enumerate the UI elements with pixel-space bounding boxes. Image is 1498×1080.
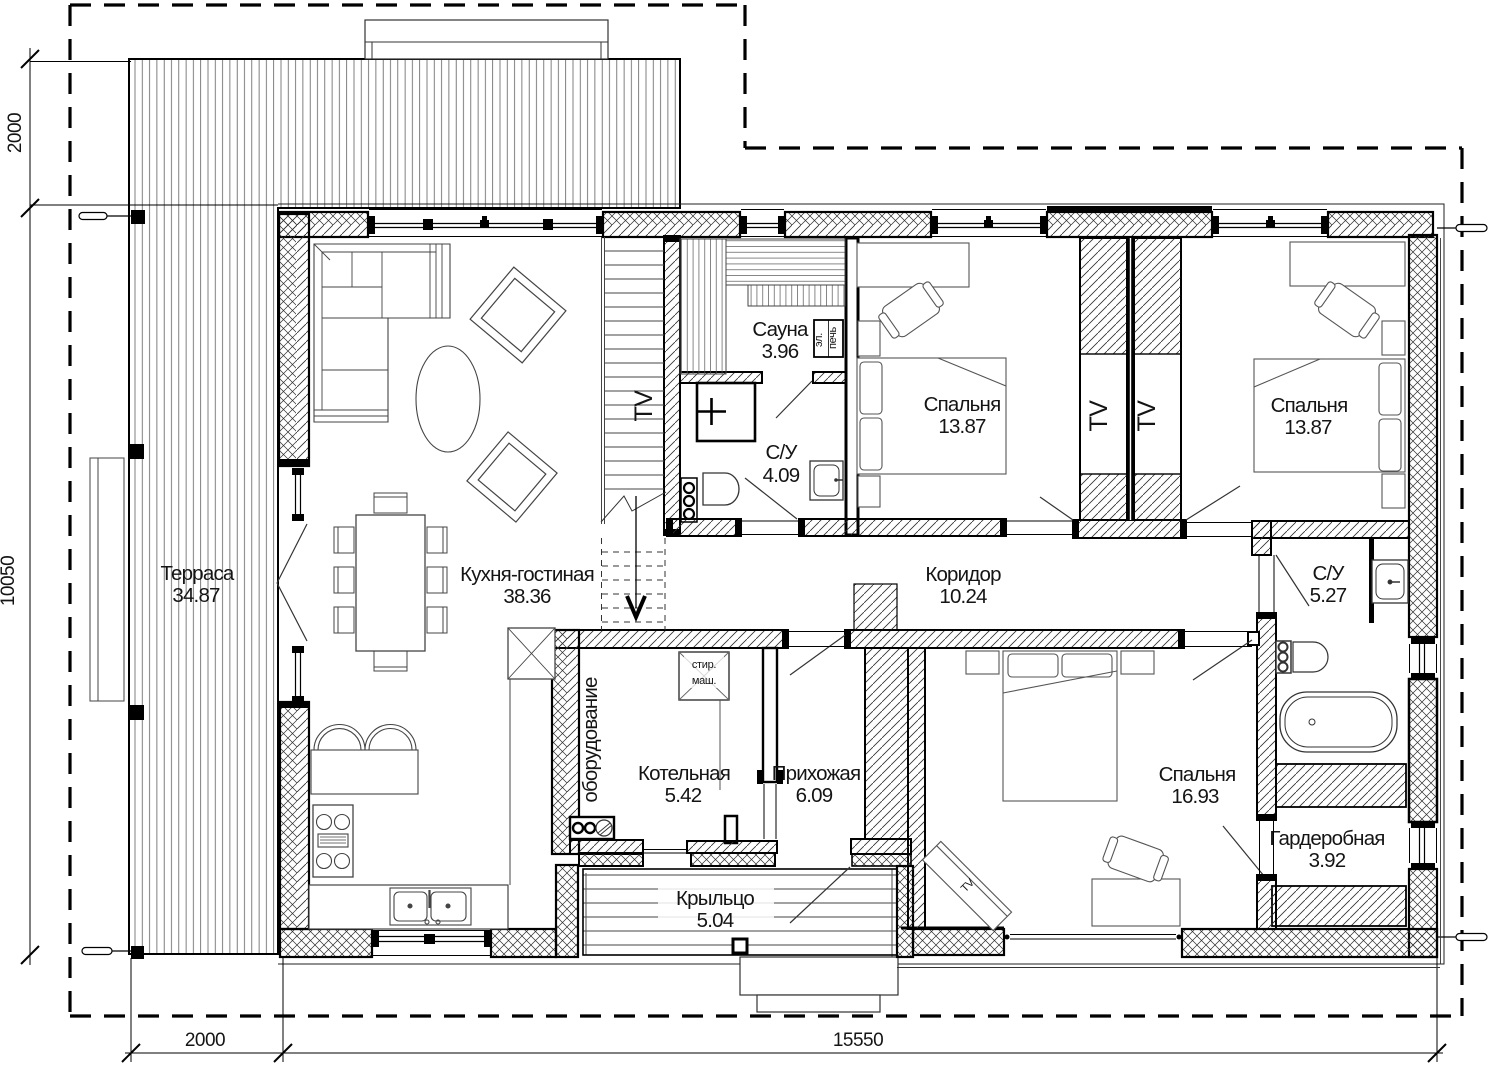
svg-text:Крыльцо: Крыльцо — [676, 887, 754, 910]
svg-text:Коридор: Коридор — [925, 563, 1001, 586]
svg-text:10050: 10050 — [0, 556, 19, 606]
svg-text:10.24: 10.24 — [939, 585, 987, 608]
svg-text:стир.: стир. — [692, 659, 717, 671]
svg-text:печь: печь — [827, 326, 839, 349]
svg-text:13.87: 13.87 — [938, 415, 986, 438]
svg-text:Сауна: Сауна — [752, 318, 809, 341]
svg-text:эл.: эл. — [813, 333, 825, 347]
svg-text:TV: TV — [630, 390, 658, 422]
svg-text:34.87: 34.87 — [172, 584, 220, 607]
svg-text:15550: 15550 — [833, 1030, 883, 1051]
svg-text:3.96: 3.96 — [762, 340, 799, 363]
svg-text:16.93: 16.93 — [1171, 785, 1219, 808]
svg-text:6.09: 6.09 — [796, 784, 833, 807]
svg-text:Спальня: Спальня — [1271, 394, 1348, 417]
svg-text:маш.: маш. — [692, 675, 717, 687]
svg-text:3.92: 3.92 — [1309, 849, 1346, 872]
svg-text:оборудование: оборудование — [579, 677, 602, 803]
svg-text:2000: 2000 — [5, 113, 26, 153]
svg-text:Терраса: Терраса — [160, 562, 234, 585]
svg-text:Котельная: Котельная — [638, 762, 730, 785]
svg-text:Кухня-гостиная: Кухня-гостиная — [460, 563, 594, 586]
svg-text:TV: TV — [1133, 400, 1161, 432]
svg-text:Спальня: Спальня — [1159, 763, 1236, 786]
svg-text:Спальня: Спальня — [924, 393, 1001, 416]
svg-text:С/У: С/У — [765, 441, 798, 464]
svg-text:13.87: 13.87 — [1284, 416, 1332, 439]
svg-text:С/У: С/У — [1312, 562, 1345, 585]
svg-text:4.09: 4.09 — [763, 464, 800, 487]
svg-text:5.42: 5.42 — [665, 784, 702, 807]
svg-text:2000: 2000 — [185, 1030, 225, 1051]
svg-text:5.27: 5.27 — [1310, 584, 1347, 607]
svg-text:5.04: 5.04 — [697, 909, 734, 932]
svg-text:Гардеробная: Гардеробная — [1269, 827, 1384, 850]
svg-text:38.36: 38.36 — [503, 585, 551, 608]
svg-text:Прихожая: Прихожая — [772, 762, 861, 785]
svg-text:TV: TV — [1085, 400, 1113, 432]
